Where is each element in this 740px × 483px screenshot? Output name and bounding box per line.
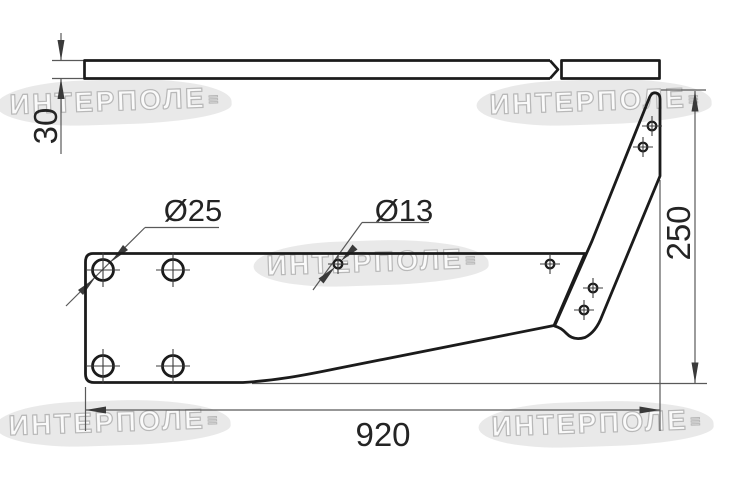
break-symbol [550,61,558,79]
drawing-canvas: ИНТЕРПОЛЕ≡ ИНТЕРПОЛЕ≡ ИНТЕРПОЛЕ≡ ИНТЕРПО… [0,0,740,483]
arrow-down-icon [58,40,65,61]
top-view-bar [85,61,660,79]
dim-label-250: 250 [660,205,697,260]
technical-drawing-svg: 30 920 250 Ø25 Ø13 [0,0,740,483]
bar-left-segment [85,61,551,79]
arrow-diag-icon [319,267,336,284]
holes-large-d25 [93,260,184,377]
arrow-up-icon [692,91,699,112]
leader-line-d25 [66,228,145,307]
dimension-lines [52,33,707,431]
plate-outline [86,254,586,383]
dim-label-d25: Ø25 [164,193,223,228]
arrow-right-icon [640,407,661,414]
arrow-left-icon [86,407,107,414]
dim-label-920: 920 [355,416,410,453]
arrow-up-icon [58,79,65,100]
dim-label-30: 30 [27,108,64,145]
arrow-down-icon [692,363,699,384]
hole-crosshairs [86,116,662,383]
strut-outline [555,93,661,339]
side-view-part [86,93,661,383]
bar-right-segment [562,61,660,79]
dim-label-d13: Ø13 [375,193,434,228]
